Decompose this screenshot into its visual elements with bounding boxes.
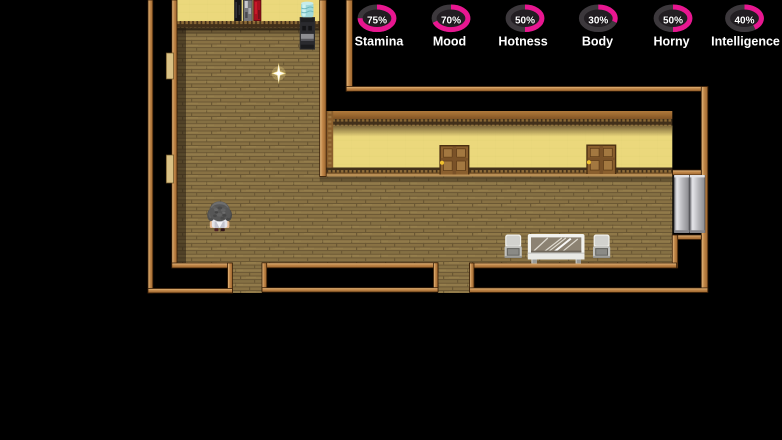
svg-text:30%: 30% [588, 16, 608, 27]
svg-text:Stamina: Stamina [355, 35, 405, 49]
svg-text:Mood: Mood [433, 35, 466, 49]
svg-text:Hotness: Hotness [498, 35, 547, 49]
svg-text:Body: Body [582, 35, 613, 49]
svg-text:40%: 40% [734, 16, 754, 27]
svg-text:50%: 50% [515, 16, 535, 27]
svg-text:Horny: Horny [653, 35, 689, 49]
svg-text:Intelligence: Intelligence [711, 35, 780, 49]
svg-text:50%: 50% [663, 16, 683, 27]
svg-text:75%: 75% [367, 16, 387, 27]
svg-text:70%: 70% [441, 16, 461, 27]
